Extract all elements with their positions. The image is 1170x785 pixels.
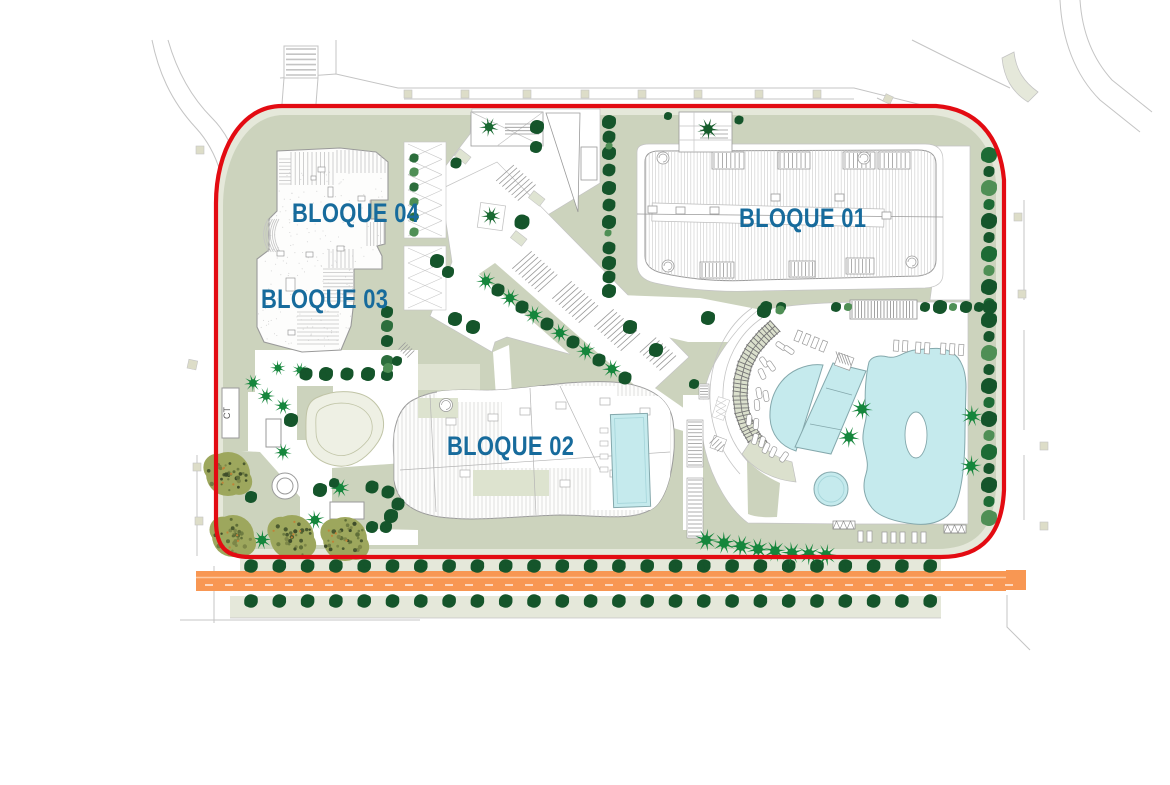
svg-text:BLOQUE 01: BLOQUE 01: [739, 204, 866, 234]
svg-text:BLOQUE 04: BLOQUE 04: [292, 199, 419, 229]
svg-text:CT: CT: [222, 407, 232, 419]
svg-text:BLOQUE 03: BLOQUE 03: [261, 285, 388, 315]
svg-text:BLOQUE 02: BLOQUE 02: [447, 432, 574, 462]
